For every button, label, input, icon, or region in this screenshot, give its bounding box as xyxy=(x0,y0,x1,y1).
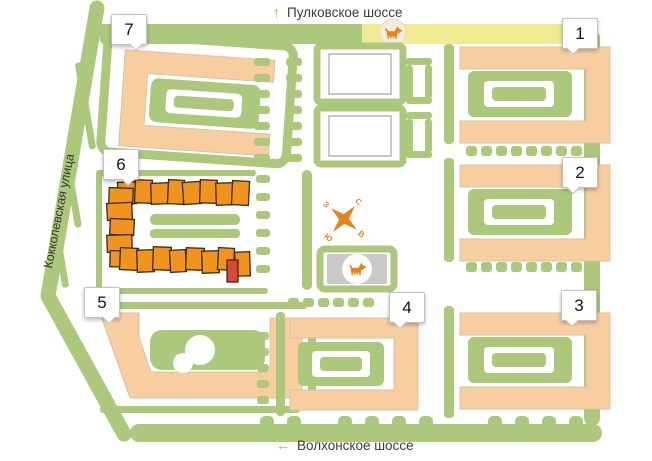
building-6-selected-section[interactable] xyxy=(227,260,238,282)
building-1-block xyxy=(460,47,610,143)
building-marker-6[interactable]: 6 xyxy=(103,149,139,180)
building-marker-2[interactable]: 2 xyxy=(562,157,598,188)
compass-west-label: З xyxy=(321,200,331,210)
street-label-pulkovskoe: ↑Пулковское шоссе xyxy=(273,4,403,20)
masterplan-map: С В Ю З ↑Пулковское шоссе ←Волхонское шо… xyxy=(0,0,652,461)
building-marker-4[interactable]: 4 xyxy=(389,292,425,323)
dog-road-sign xyxy=(380,19,406,45)
arrow-up-icon: ↑ xyxy=(273,4,280,20)
compass-east-label: В xyxy=(356,229,366,240)
building-6-block xyxy=(96,170,312,294)
compass-north-label: С xyxy=(353,196,363,207)
building-marker-3[interactable]: 3 xyxy=(561,290,597,321)
building-marker-5[interactable]: 5 xyxy=(84,287,120,318)
map-canvas: С В Ю З xyxy=(0,0,652,461)
building-marker-7[interactable]: 7 xyxy=(111,14,147,45)
street-label-volkhonskoe: ←Волхонское шоссе xyxy=(276,437,414,453)
future-plots xyxy=(254,46,432,164)
building-3-block xyxy=(460,313,610,409)
plot-lower[interactable] xyxy=(329,116,391,156)
building-marker-1[interactable]: 1 xyxy=(562,18,598,49)
arrow-left-icon: ← xyxy=(276,437,290,453)
plot-upper[interactable] xyxy=(329,54,391,94)
dog-walk-area xyxy=(320,249,394,289)
compass-south-label: Ю xyxy=(322,232,334,244)
